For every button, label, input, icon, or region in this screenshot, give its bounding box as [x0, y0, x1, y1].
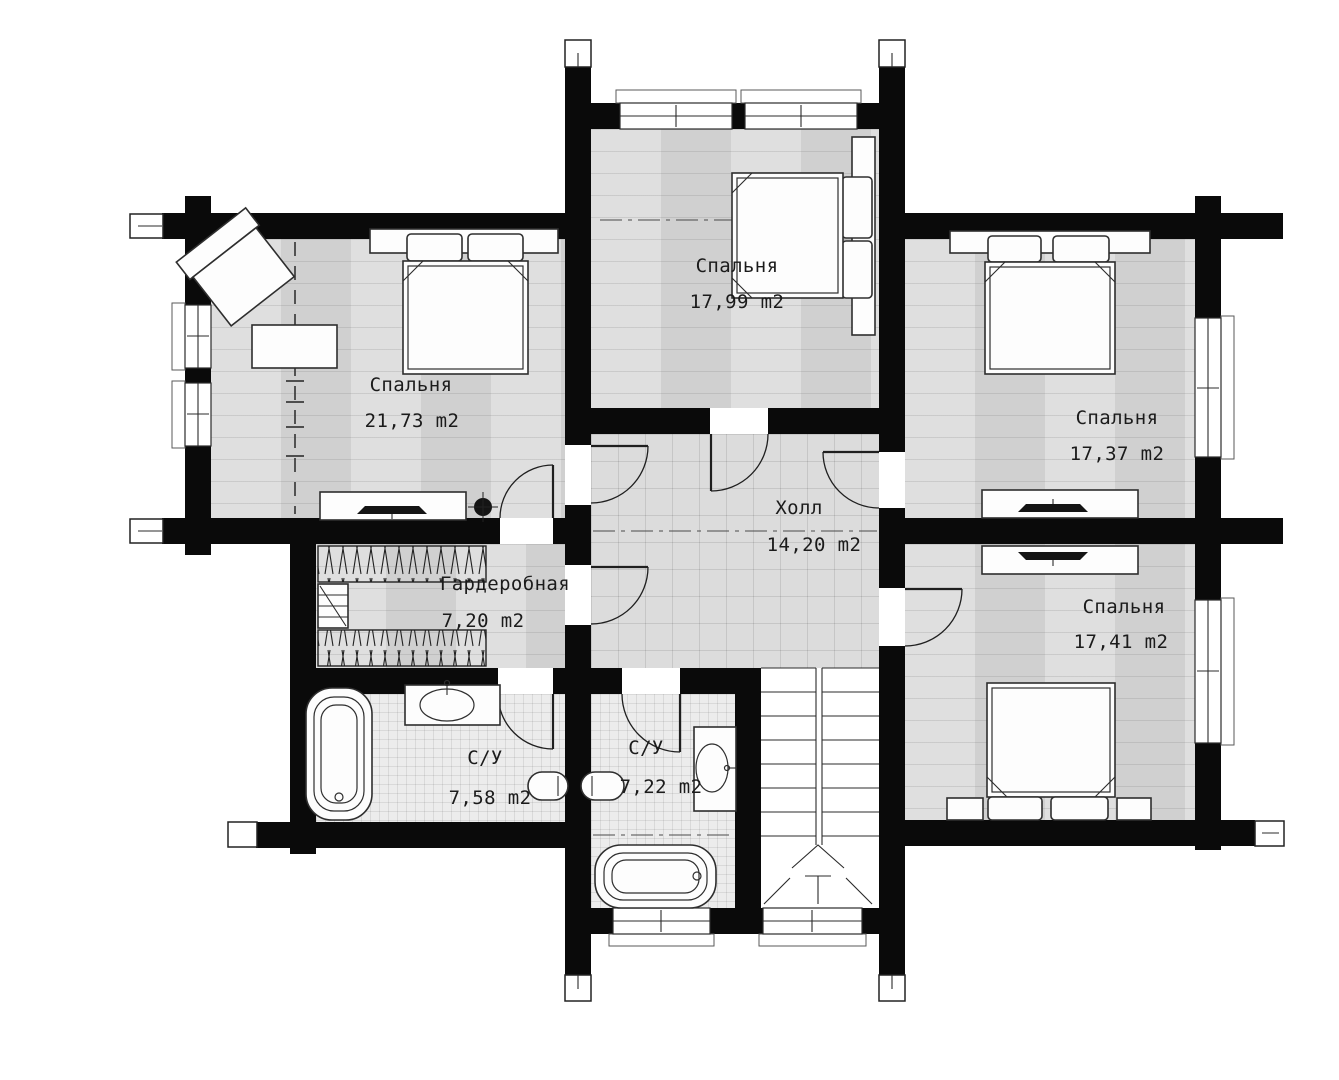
double-bed — [947, 683, 1151, 820]
bedroom-right-lower-furniture — [947, 546, 1151, 820]
table — [252, 325, 337, 368]
room-area-bedroom-top: 17,99 m2 — [690, 291, 785, 313]
room-name-bedroom-right-lower: Спальня — [1083, 596, 1166, 618]
window-bottom-2 — [759, 908, 866, 946]
room-name-bedroom-top: Спальня — [696, 255, 779, 277]
room-area-bathroom-left: 7,58 m2 — [449, 787, 532, 809]
window-bottom-1 — [609, 908, 714, 946]
room-name-bathroom-left: С/У — [467, 747, 503, 769]
window-left-1 — [172, 303, 211, 370]
staircase — [761, 668, 879, 904]
room-area-bedroom-right-lower: 17,41 m2 — [1074, 631, 1169, 653]
window-top-1 — [616, 90, 736, 129]
door-bedroom-right-upper — [823, 452, 879, 508]
door-wardrobe — [591, 567, 648, 624]
bedroom-left-furniture — [176, 208, 558, 522]
room-area-bedroom-left: 21,73 m2 — [365, 410, 460, 432]
floor-plan: Спальня 21,73 m2 Спальня 17,99 m2 Спальн… — [0, 0, 1339, 1080]
bathtub — [306, 688, 372, 820]
window-left-2 — [172, 381, 211, 448]
window-right-2 — [1195, 598, 1234, 745]
window-right-1 — [1195, 316, 1234, 459]
bedroom-right-upper-furniture — [950, 231, 1150, 518]
tv-console — [982, 490, 1138, 518]
room-area-hall: 14,20 m2 — [767, 534, 862, 556]
towel-radiator — [528, 772, 568, 800]
towel-radiator — [581, 772, 624, 800]
room-name-hall: Холл — [775, 497, 822, 519]
door-bathroom-left — [498, 694, 553, 749]
chimney-dot — [468, 492, 498, 522]
room-area-wardrobe: 7,20 m2 — [442, 610, 525, 632]
shelf-unit — [318, 584, 348, 628]
plan-drawing — [0, 0, 1339, 1080]
room-area-bathroom-right: 7,22 m2 — [620, 776, 703, 798]
double-bed — [370, 229, 558, 374]
tv-console — [320, 492, 466, 520]
wardrobe-units — [318, 546, 486, 666]
sink-vanity — [405, 681, 500, 726]
bathtub — [595, 845, 716, 908]
room-name-wardrobe: Гардеробная — [440, 573, 570, 595]
door-bedroom-left — [591, 446, 648, 503]
sink-vanity — [694, 727, 737, 811]
door-bedroom-top — [711, 434, 768, 491]
room-name-bathroom-right: С/У — [628, 737, 664, 759]
room-area-bedroom-right-upper: 17,37 m2 — [1070, 443, 1165, 465]
room-name-bedroom-right-upper: Спальня — [1076, 407, 1159, 429]
door-bedroom-right-lower — [905, 589, 962, 646]
door-bedroom-left-wardrobe — [500, 465, 553, 518]
tv-console — [982, 546, 1138, 574]
room-name-bedroom-left: Спальня — [370, 374, 453, 396]
window-top-2 — [741, 90, 861, 129]
double-bed — [950, 231, 1150, 374]
